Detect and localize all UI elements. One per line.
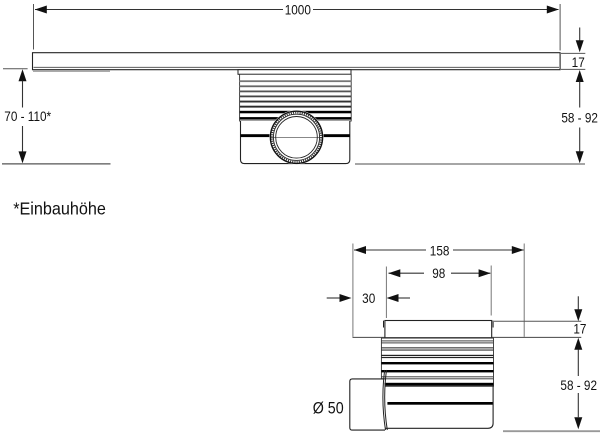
svg-text:*Einbauhöhe: *Einbauhöhe	[13, 199, 106, 219]
svg-text:58 - 92: 58 - 92	[561, 110, 598, 126]
svg-text:17: 17	[572, 54, 585, 70]
svg-text:158: 158	[430, 242, 450, 258]
svg-text:Ø 50: Ø 50	[313, 400, 344, 418]
svg-text:30: 30	[362, 290, 375, 306]
svg-text:1000: 1000	[285, 1, 311, 17]
svg-text:70 - 110*: 70 - 110*	[4, 108, 51, 124]
svg-text:98: 98	[432, 265, 445, 281]
svg-text:58 - 92: 58 - 92	[560, 377, 597, 393]
svg-text:17: 17	[573, 321, 586, 337]
